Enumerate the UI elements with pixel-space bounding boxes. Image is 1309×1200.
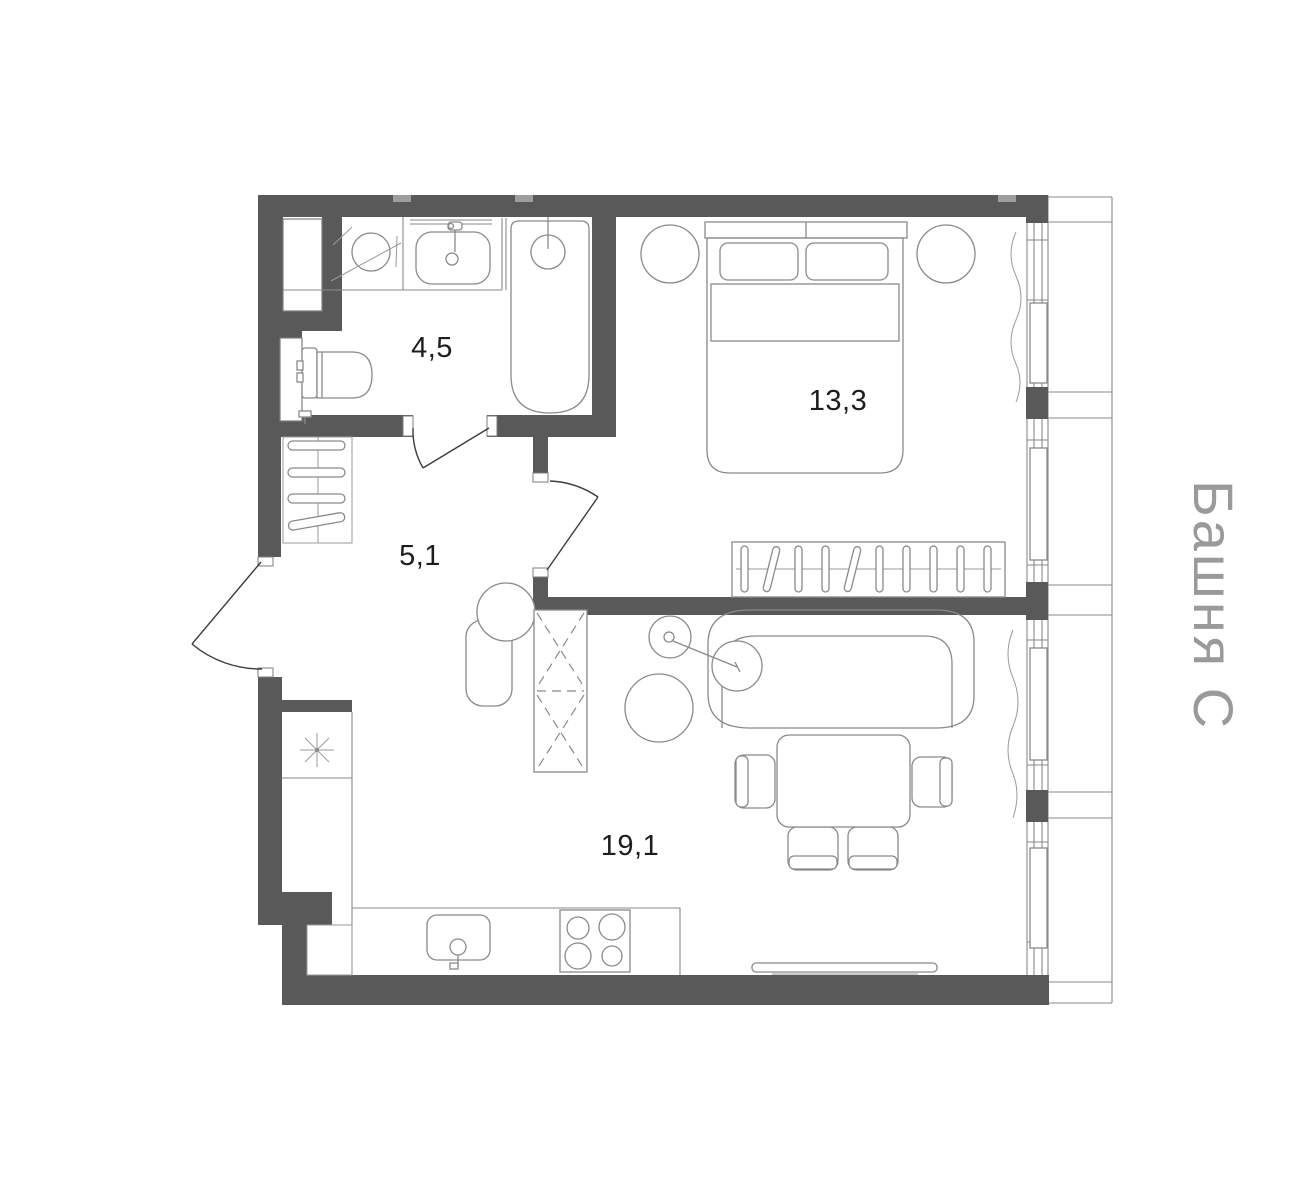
wall-stub-upper: [533, 437, 548, 473]
wall-shaft-right: [322, 217, 342, 313]
bathtub-icon: [511, 217, 589, 413]
coat-rack-icon: [283, 437, 352, 543]
wardrobe-icon: [534, 610, 587, 772]
floorplan-svg: 4,5 5,1 13,3 19,1 Башня С: [0, 0, 1309, 1200]
wall-step: [258, 892, 332, 925]
room-area-bathroom: 4,5: [411, 332, 453, 364]
tv-icon: [752, 963, 937, 974]
wall-lower-strip: [282, 925, 307, 980]
wall-top: [258, 195, 1048, 217]
curtain-icon: [1011, 232, 1021, 402]
wall-bath-bedroom: [592, 195, 616, 437]
kitchen-sink-icon: [427, 915, 490, 969]
fridge-snowflake-icon: [300, 733, 334, 767]
bedroom-door: [547, 481, 598, 570]
room-area-hallway: 5,1: [399, 540, 441, 572]
wall-pier-3: [1026, 582, 1048, 620]
wall-bottom: [282, 975, 1049, 1005]
wall-left-top: [258, 195, 283, 331]
pouf-icon: [625, 674, 693, 742]
floorplan-canvas: 4,5 5,1 13,3 19,1 Башня С: [0, 0, 1309, 1200]
bathroom-door: [413, 428, 489, 468]
balcony-structure: [1048, 197, 1112, 1003]
open-wardrobe-icon: [732, 542, 1005, 597]
wall-left-entry: [258, 437, 281, 557]
nightstand-icon: [917, 225, 975, 283]
stove-icon: [560, 910, 630, 972]
sofa-icon: [708, 610, 974, 728]
wall-fridge-band: [282, 700, 352, 712]
shaft-opening: [283, 219, 322, 311]
wall-pier-2: [1026, 387, 1048, 419]
curtain-icon: [1008, 630, 1018, 818]
wall-shaft-bottom: [258, 311, 342, 331]
armchair-icon: [466, 583, 535, 706]
room-area-living-kitchen: 19,1: [601, 830, 659, 862]
living-room: [625, 610, 1018, 974]
walls: [258, 195, 1049, 1005]
toilet-icon: [297, 348, 372, 424]
dining-set-icon: [735, 735, 952, 870]
wall-pier-1: [1026, 195, 1048, 223]
entrance-door: [192, 562, 262, 669]
bathroom-sink-icon: [416, 222, 490, 284]
wall-left-lower: [258, 677, 282, 892]
tower-label: Башня С: [1182, 480, 1245, 731]
double-bed-icon: [705, 222, 907, 473]
room-area-bedroom: 13,3: [809, 385, 867, 417]
nightstand-icon: [641, 225, 699, 283]
wall-pier-4: [1026, 790, 1048, 822]
